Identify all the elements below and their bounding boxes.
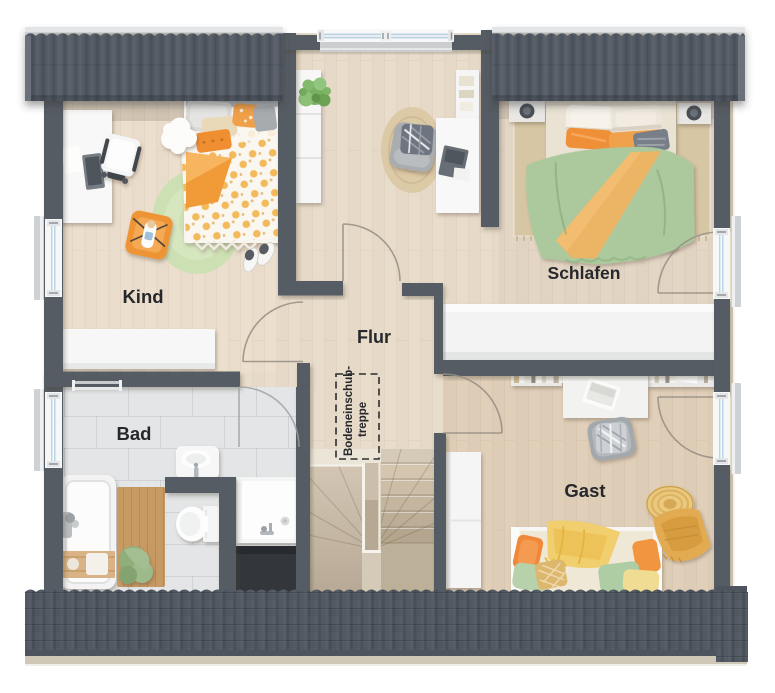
- svg-text:Schlafen: Schlafen: [548, 263, 621, 283]
- svg-text:Flur: Flur: [357, 327, 391, 347]
- svg-text:Bodeneinschub-: Bodeneinschub-: [343, 366, 355, 456]
- svg-text:treppe: treppe: [357, 402, 369, 437]
- svg-text:Kind: Kind: [122, 286, 163, 307]
- svg-text:Bad: Bad: [117, 423, 152, 444]
- svg-text:Gast: Gast: [564, 480, 605, 501]
